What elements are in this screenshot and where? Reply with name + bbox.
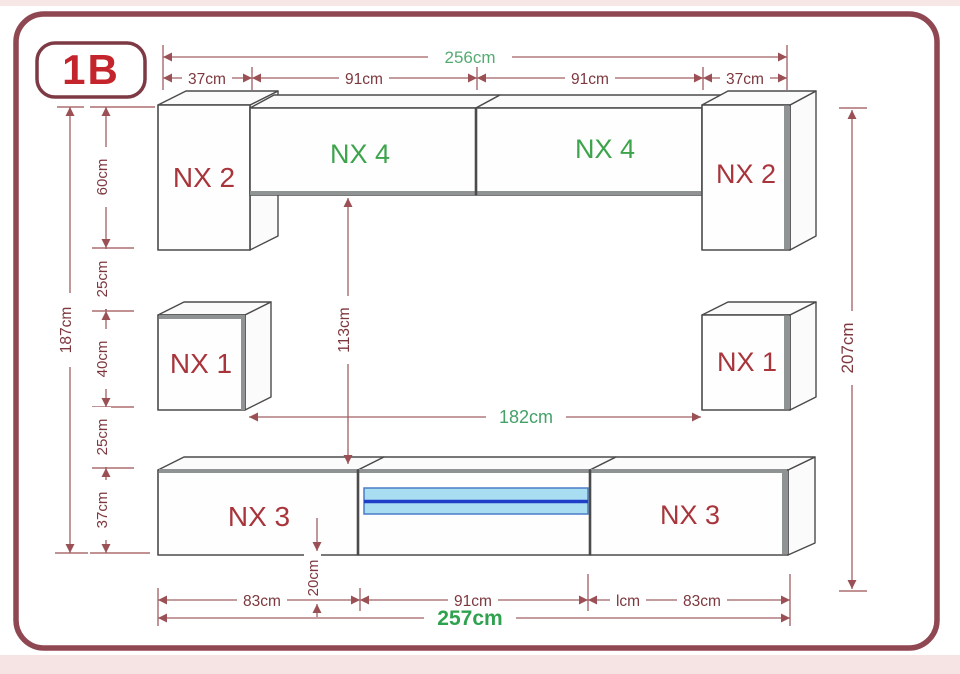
top-edge-tint xyxy=(0,0,960,6)
cabinet-tv-middle xyxy=(358,457,616,555)
cabinet-top-face xyxy=(476,95,726,108)
cabinet-side-face xyxy=(245,302,271,410)
cabinet-edge-strip xyxy=(784,316,790,409)
cabinet-label: NX 3 xyxy=(228,501,290,532)
cabinet-label: NX 2 xyxy=(173,162,235,193)
cabinet-top-face xyxy=(158,457,384,470)
dim-label: 91cm xyxy=(345,71,383,88)
dim-top-segments: 37cm 91cm 91cm 37cm xyxy=(163,67,787,90)
dim-label: 25cm xyxy=(94,261,111,298)
cabinet-label: NX 2 xyxy=(716,159,776,189)
dim-label: lcm xyxy=(616,593,640,610)
dim-label: 20cm xyxy=(305,560,322,597)
model-badge: 1B xyxy=(37,43,145,97)
cabinet-nx4-left: NX 4 xyxy=(250,95,500,195)
dim-left-total: 187cm xyxy=(55,107,88,553)
diagram-canvas: 1B NX 2 NX 4 NX 4 NX 2 NX 1 xyxy=(0,0,960,674)
dim-label: 187cm xyxy=(58,307,75,354)
cabinet-top-face xyxy=(590,457,815,470)
cabinet-label: NX 1 xyxy=(717,347,777,377)
dim-label: 83cm xyxy=(683,593,721,610)
cabinet-label: NX 1 xyxy=(170,348,232,379)
dim-left-segments: 60cm 25cm 40cm 25cm 37cm xyxy=(90,107,155,553)
cabinet-edge-strip xyxy=(241,315,245,410)
cabinet-side-face xyxy=(790,302,816,410)
model-badge-label: 1B xyxy=(62,46,120,93)
dim-label: 40cm xyxy=(94,341,111,378)
dim-label: 37cm xyxy=(726,71,764,88)
cabinet-label: NX 4 xyxy=(330,139,390,169)
dim-label: 256cm xyxy=(444,48,495,67)
cabinet-nx2-right: NX 2 xyxy=(702,91,816,250)
cabinet-top-face xyxy=(250,95,500,108)
dim-label: 37cm xyxy=(188,71,226,88)
cabinet-bottom-edge xyxy=(250,191,476,195)
dim-label: 113cm xyxy=(336,307,353,352)
dim-label: 60cm xyxy=(94,159,111,196)
cabinet-bottom-edge xyxy=(476,191,702,195)
dim-center-height: 113cm xyxy=(334,198,353,464)
cabinet-nx3-left: NX 3 xyxy=(158,457,384,555)
dim-label: 37cm xyxy=(94,492,111,529)
cabinet-nx4-right: NX 4 xyxy=(476,95,726,195)
cabinet-top-edge xyxy=(159,469,357,473)
cabinet-top-edge xyxy=(159,315,244,319)
cabinet-nx1-left: NX 1 xyxy=(158,302,271,410)
cabinet-side-face xyxy=(790,91,816,250)
cabinet-label: NX 4 xyxy=(575,134,635,164)
cabinet-edge-strip xyxy=(784,106,790,249)
cabinet-side-face xyxy=(788,457,815,555)
dim-label: 182cm xyxy=(499,407,553,427)
dim-bottom-total: 257cm xyxy=(158,607,790,630)
furniture-dimension-diagram: 1B NX 2 NX 4 NX 4 NX 2 NX 1 xyxy=(0,0,960,674)
cabinet-top-face xyxy=(358,457,616,470)
dim-label: 83cm xyxy=(243,593,281,610)
cabinet-top-edge xyxy=(359,469,589,473)
cabinet-nx3-right: NX 3 xyxy=(590,457,815,555)
dim-label: 257cm xyxy=(437,607,502,630)
dim-top-total: 256cm xyxy=(163,45,787,90)
dim-right-total: 207cm xyxy=(837,108,867,591)
cabinet-nx1-right: NX 1 xyxy=(702,302,816,410)
dim-label: 207cm xyxy=(838,322,857,373)
dim-label: 91cm xyxy=(571,71,609,88)
cabinet-top-edge xyxy=(591,469,787,473)
cabinet-edge-strip xyxy=(782,471,788,554)
dim-center-span: 182cm xyxy=(249,405,701,427)
bottom-edge-tint xyxy=(0,655,960,674)
cabinet-label: NX 3 xyxy=(660,500,720,530)
dim-label: 25cm xyxy=(94,419,111,456)
